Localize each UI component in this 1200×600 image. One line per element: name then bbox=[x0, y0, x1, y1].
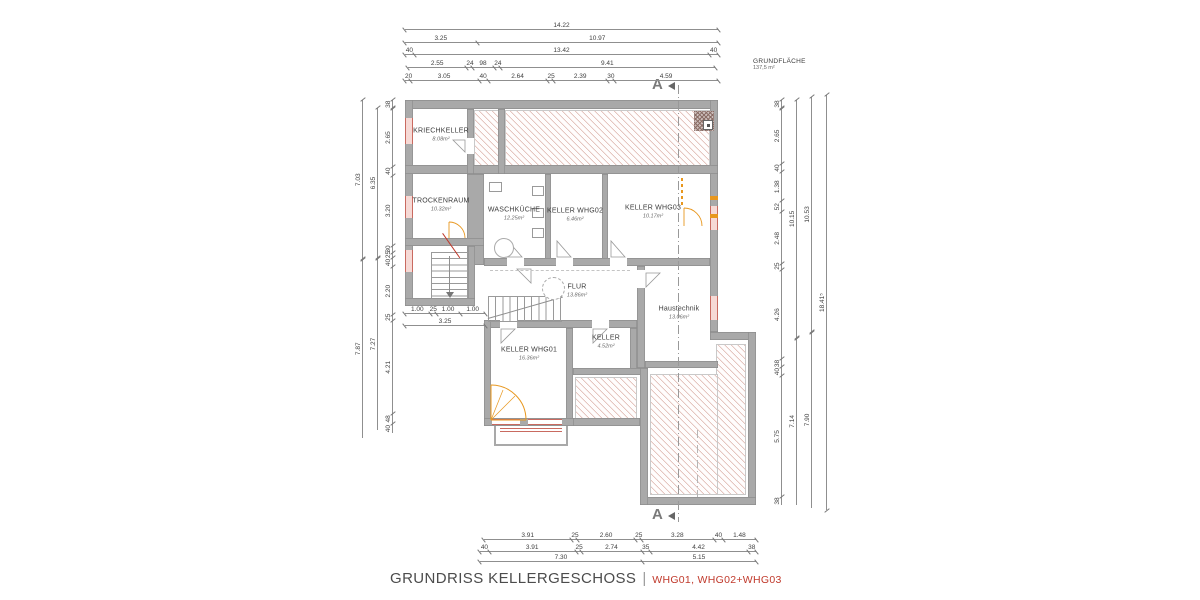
room-name: KELLER bbox=[592, 334, 620, 343]
dim-chain-top-3: 4013.4240 bbox=[405, 45, 718, 55]
dimension-value: 1.00 bbox=[405, 306, 430, 313]
door-swing-orange bbox=[682, 206, 704, 228]
door-swing bbox=[645, 272, 663, 290]
door-opening bbox=[610, 258, 627, 266]
room-name: KELLER WHG01 bbox=[501, 346, 557, 355]
dim-chain-stair: 1.00251.001.00 bbox=[405, 304, 485, 314]
door-swing bbox=[610, 240, 628, 258]
room-area: 12.25m² bbox=[488, 215, 540, 222]
dim-chain-right-mid: 10.157.14 bbox=[787, 100, 797, 505]
dimension-value: 98 bbox=[472, 60, 494, 67]
room-name: WASCHKÜCHE bbox=[488, 206, 540, 215]
room-area: 13.06m² bbox=[659, 314, 700, 321]
dimension-value: 7.87 bbox=[355, 259, 362, 438]
dimension-value: 40 bbox=[714, 532, 723, 539]
dim-chain-bottom-1: 3.91252.60253.28401.48 bbox=[484, 530, 756, 540]
window bbox=[405, 250, 413, 272]
wall bbox=[498, 109, 505, 174]
dimension-value: 5.15 bbox=[642, 554, 756, 561]
dimension-value: 7.03 bbox=[355, 100, 362, 259]
dimension-value: 1.00 bbox=[460, 306, 485, 313]
room-area: 10.32m² bbox=[412, 206, 469, 213]
dimension-value: 38 bbox=[774, 497, 781, 505]
terrace-hatch bbox=[716, 344, 746, 495]
dimension-value: 14.22 bbox=[405, 22, 718, 29]
room-area: 6.46m² bbox=[547, 216, 603, 223]
dimension-value: 4.59 bbox=[614, 73, 718, 80]
wall bbox=[405, 100, 718, 109]
wall bbox=[573, 368, 645, 375]
dim-chain-right-outer: 10.537.90 bbox=[802, 97, 812, 508]
door-swing-orange bbox=[447, 220, 467, 240]
dimension-value: 3.25 bbox=[405, 318, 485, 325]
room-area: 4.52m² bbox=[592, 343, 620, 350]
dim-chain-top-2: 3.2510.97 bbox=[405, 33, 718, 43]
dimension-value: 52 bbox=[774, 201, 781, 212]
title-apartments: WHG01, WHG02+WHG03 bbox=[652, 574, 781, 586]
orange-marker-line bbox=[681, 178, 683, 208]
spiral-stair bbox=[488, 382, 528, 422]
dimension-value: 40 bbox=[709, 47, 718, 54]
dimension-value: 1.00 bbox=[436, 306, 461, 313]
dimension-value: 9.41 bbox=[500, 60, 715, 67]
dimension-value: 40 bbox=[774, 367, 781, 375]
crawl-space-hatch bbox=[474, 110, 500, 167]
wall bbox=[566, 328, 573, 426]
room-label-kriechkeller: KRIECHKELLER 8.08m² bbox=[413, 127, 469, 142]
dimension-value: 40 bbox=[405, 47, 414, 54]
room-area: 16.36m² bbox=[501, 355, 557, 362]
crawl-space-hatch bbox=[575, 377, 637, 420]
orange-wall-mark bbox=[710, 196, 718, 200]
room-area: 8.08m² bbox=[413, 136, 469, 143]
door-opening bbox=[507, 258, 524, 266]
dimension-value: 2.74 bbox=[581, 544, 642, 551]
room-label-keller-whg01: KELLER WHG01 16.36m² bbox=[501, 346, 557, 361]
dimension-value: 13.42 bbox=[414, 47, 709, 54]
dimension-value: 10.97 bbox=[477, 35, 718, 42]
dimension-value: 4.26 bbox=[774, 270, 781, 360]
porch-glazing bbox=[500, 431, 562, 432]
room-name: KRIECHKELLER bbox=[413, 127, 469, 136]
orange-wall-mark bbox=[710, 214, 718, 218]
area-legend-value: 137,5 m² bbox=[753, 65, 806, 71]
wall bbox=[468, 246, 475, 306]
washer-box bbox=[532, 228, 544, 238]
dimension-value: 3.05 bbox=[410, 73, 479, 80]
dimension-value: 18.41⁵ bbox=[819, 95, 826, 510]
title-separator: | bbox=[642, 570, 646, 587]
room-name: FLUR bbox=[567, 283, 587, 292]
room-name: KELLER WHG02 bbox=[547, 207, 603, 216]
porch-glazing bbox=[500, 428, 562, 429]
wall bbox=[573, 418, 640, 426]
dim-chain-left-outer: 7.037.87 bbox=[353, 100, 363, 438]
dimension-value: 40 bbox=[479, 73, 488, 80]
dimension-value: 3.91 bbox=[484, 532, 571, 539]
floor-drain bbox=[494, 238, 514, 258]
dimension-value: 10.15 bbox=[789, 100, 796, 338]
room-label-keller-whg02: KELLER WHG02 6.46m² bbox=[547, 207, 603, 222]
window bbox=[710, 206, 718, 230]
dimension-value: 40 bbox=[385, 258, 392, 267]
dimension-value: 35 bbox=[642, 544, 650, 551]
wall bbox=[645, 361, 718, 368]
entry-porch bbox=[494, 426, 568, 446]
wall bbox=[640, 497, 756, 505]
dimension-value: 3.91 bbox=[489, 544, 576, 551]
section-marker-a-bottom: A bbox=[652, 506, 663, 523]
dim-chain-right-total: 18.41⁵ bbox=[817, 95, 827, 510]
dim-chain-left-mid: 6.357.27 bbox=[368, 108, 378, 430]
dimension-value: 2.39 bbox=[553, 73, 607, 80]
dim-chain-top-4: 2.552498249.41 bbox=[408, 58, 715, 68]
dimension-value: 4.21 bbox=[385, 321, 392, 414]
dimension-value: 30 bbox=[607, 73, 614, 80]
dimension-value: 2.20 bbox=[385, 267, 392, 315]
room-name: Haustechnik bbox=[659, 305, 700, 314]
dimension-value: 10.53 bbox=[804, 97, 811, 332]
room-label-keller-whg03: KELLER WHG03 10.17m² bbox=[625, 204, 681, 219]
washer-box bbox=[489, 182, 502, 192]
dim-chain-right-inner: 382.65401.38522.48254.2638405.7538 bbox=[772, 100, 782, 505]
dimension-value: 48 bbox=[385, 414, 392, 425]
terrace-centerline bbox=[697, 430, 698, 502]
dim-chain-bottom-2: 403.91252.74354.4238 bbox=[480, 542, 756, 552]
room-area: 13.86m² bbox=[567, 292, 587, 299]
terrace-hatch bbox=[650, 374, 718, 495]
room-label-haustechnik: Haustechnik 13.06m² bbox=[659, 305, 700, 320]
dimension-value: 40 bbox=[385, 167, 392, 176]
dimension-value: 2.65 bbox=[385, 108, 392, 166]
room-label-flur: FLUR 13.86m² bbox=[567, 283, 587, 298]
dimension-value: 40 bbox=[480, 544, 489, 551]
stair-arrow bbox=[446, 292, 454, 298]
equipment-circle bbox=[542, 277, 565, 300]
room-area: 10.17m² bbox=[625, 213, 681, 220]
dimension-value: 7.30 bbox=[480, 554, 642, 561]
room-name: KELLER WHG03 bbox=[625, 204, 681, 213]
drawing-title: GRUNDRISS KELLERGESCHOSS | WHG01, WHG02+… bbox=[390, 570, 782, 587]
wall bbox=[405, 238, 484, 246]
wall bbox=[748, 332, 756, 505]
dimension-value: 2.48 bbox=[774, 212, 781, 264]
dimension-value: 3.25 bbox=[405, 35, 477, 42]
beam-dashed-line bbox=[490, 270, 630, 271]
room-label-keller: KELLER 4.52m² bbox=[592, 334, 620, 349]
section-line bbox=[678, 85, 679, 522]
dimension-value: 38 bbox=[748, 544, 756, 551]
dimension-value: 4.42 bbox=[650, 544, 748, 551]
door-opening bbox=[592, 320, 609, 328]
dimension-value: 2.64 bbox=[488, 73, 548, 80]
floorplan-canvas: A A KRIECHKELLER 8.08m² TROCKENRAUM 10.3… bbox=[0, 0, 1200, 600]
door-opening bbox=[637, 270, 645, 288]
area-legend: GRUNDFLÄCHE 137,5 m² bbox=[753, 58, 806, 71]
room-name: TROCKENRAUM bbox=[412, 197, 469, 206]
dim-chain-stair-total: 3.25 bbox=[405, 316, 485, 326]
dimension-value: 2.55 bbox=[408, 60, 466, 67]
dimension-value: 6.35 bbox=[370, 108, 377, 258]
crawl-space-hatch bbox=[505, 110, 710, 167]
dimension-value: 1.48 bbox=[723, 532, 756, 539]
window bbox=[710, 296, 718, 320]
window bbox=[528, 419, 562, 425]
washer-box bbox=[532, 186, 544, 196]
dimension-value: 7.14 bbox=[789, 338, 796, 505]
dimension-value: 1.38 bbox=[774, 172, 781, 201]
dim-chain-top-5: 203.05402.64252.39304.59 bbox=[405, 71, 718, 81]
dim-chain-top-total: 14.22 bbox=[405, 20, 718, 30]
dimension-value: 3.28 bbox=[641, 532, 714, 539]
door-swing bbox=[556, 240, 574, 258]
dimension-value: 7.27 bbox=[370, 258, 377, 430]
wall bbox=[405, 165, 718, 174]
area-legend-label: GRUNDFLÄCHE bbox=[753, 58, 806, 65]
dimension-value: 2.60 bbox=[577, 532, 635, 539]
dim-chain-left-inner: 382.65403.203025402.20254.214840 bbox=[383, 100, 393, 433]
wall bbox=[640, 368, 648, 505]
stair-walkline bbox=[449, 256, 450, 294]
window bbox=[405, 118, 413, 144]
door-opening bbox=[556, 258, 573, 266]
dimension-value: 5.75 bbox=[774, 376, 781, 497]
section-arrow-icon bbox=[668, 512, 675, 520]
title-main: GRUNDRISS KELLERGESCHOSS bbox=[390, 570, 636, 587]
room-label-waschkueche: WASCHKÜCHE 12.25m² bbox=[488, 206, 540, 221]
dimension-value: 40 bbox=[385, 424, 392, 433]
door-swing bbox=[500, 328, 518, 346]
room-label-trockenraum: TROCKENRAUM 10.32m² bbox=[412, 197, 469, 212]
dimension-value: 2.65 bbox=[774, 108, 781, 164]
dim-chain-bottom-3: 7.305.15 bbox=[480, 552, 756, 562]
dimension-value: 7.90 bbox=[804, 332, 811, 508]
dimension-value: 3.20 bbox=[385, 176, 392, 246]
section-arrow-icon bbox=[668, 82, 675, 90]
chimney-flue-dot bbox=[707, 124, 710, 127]
